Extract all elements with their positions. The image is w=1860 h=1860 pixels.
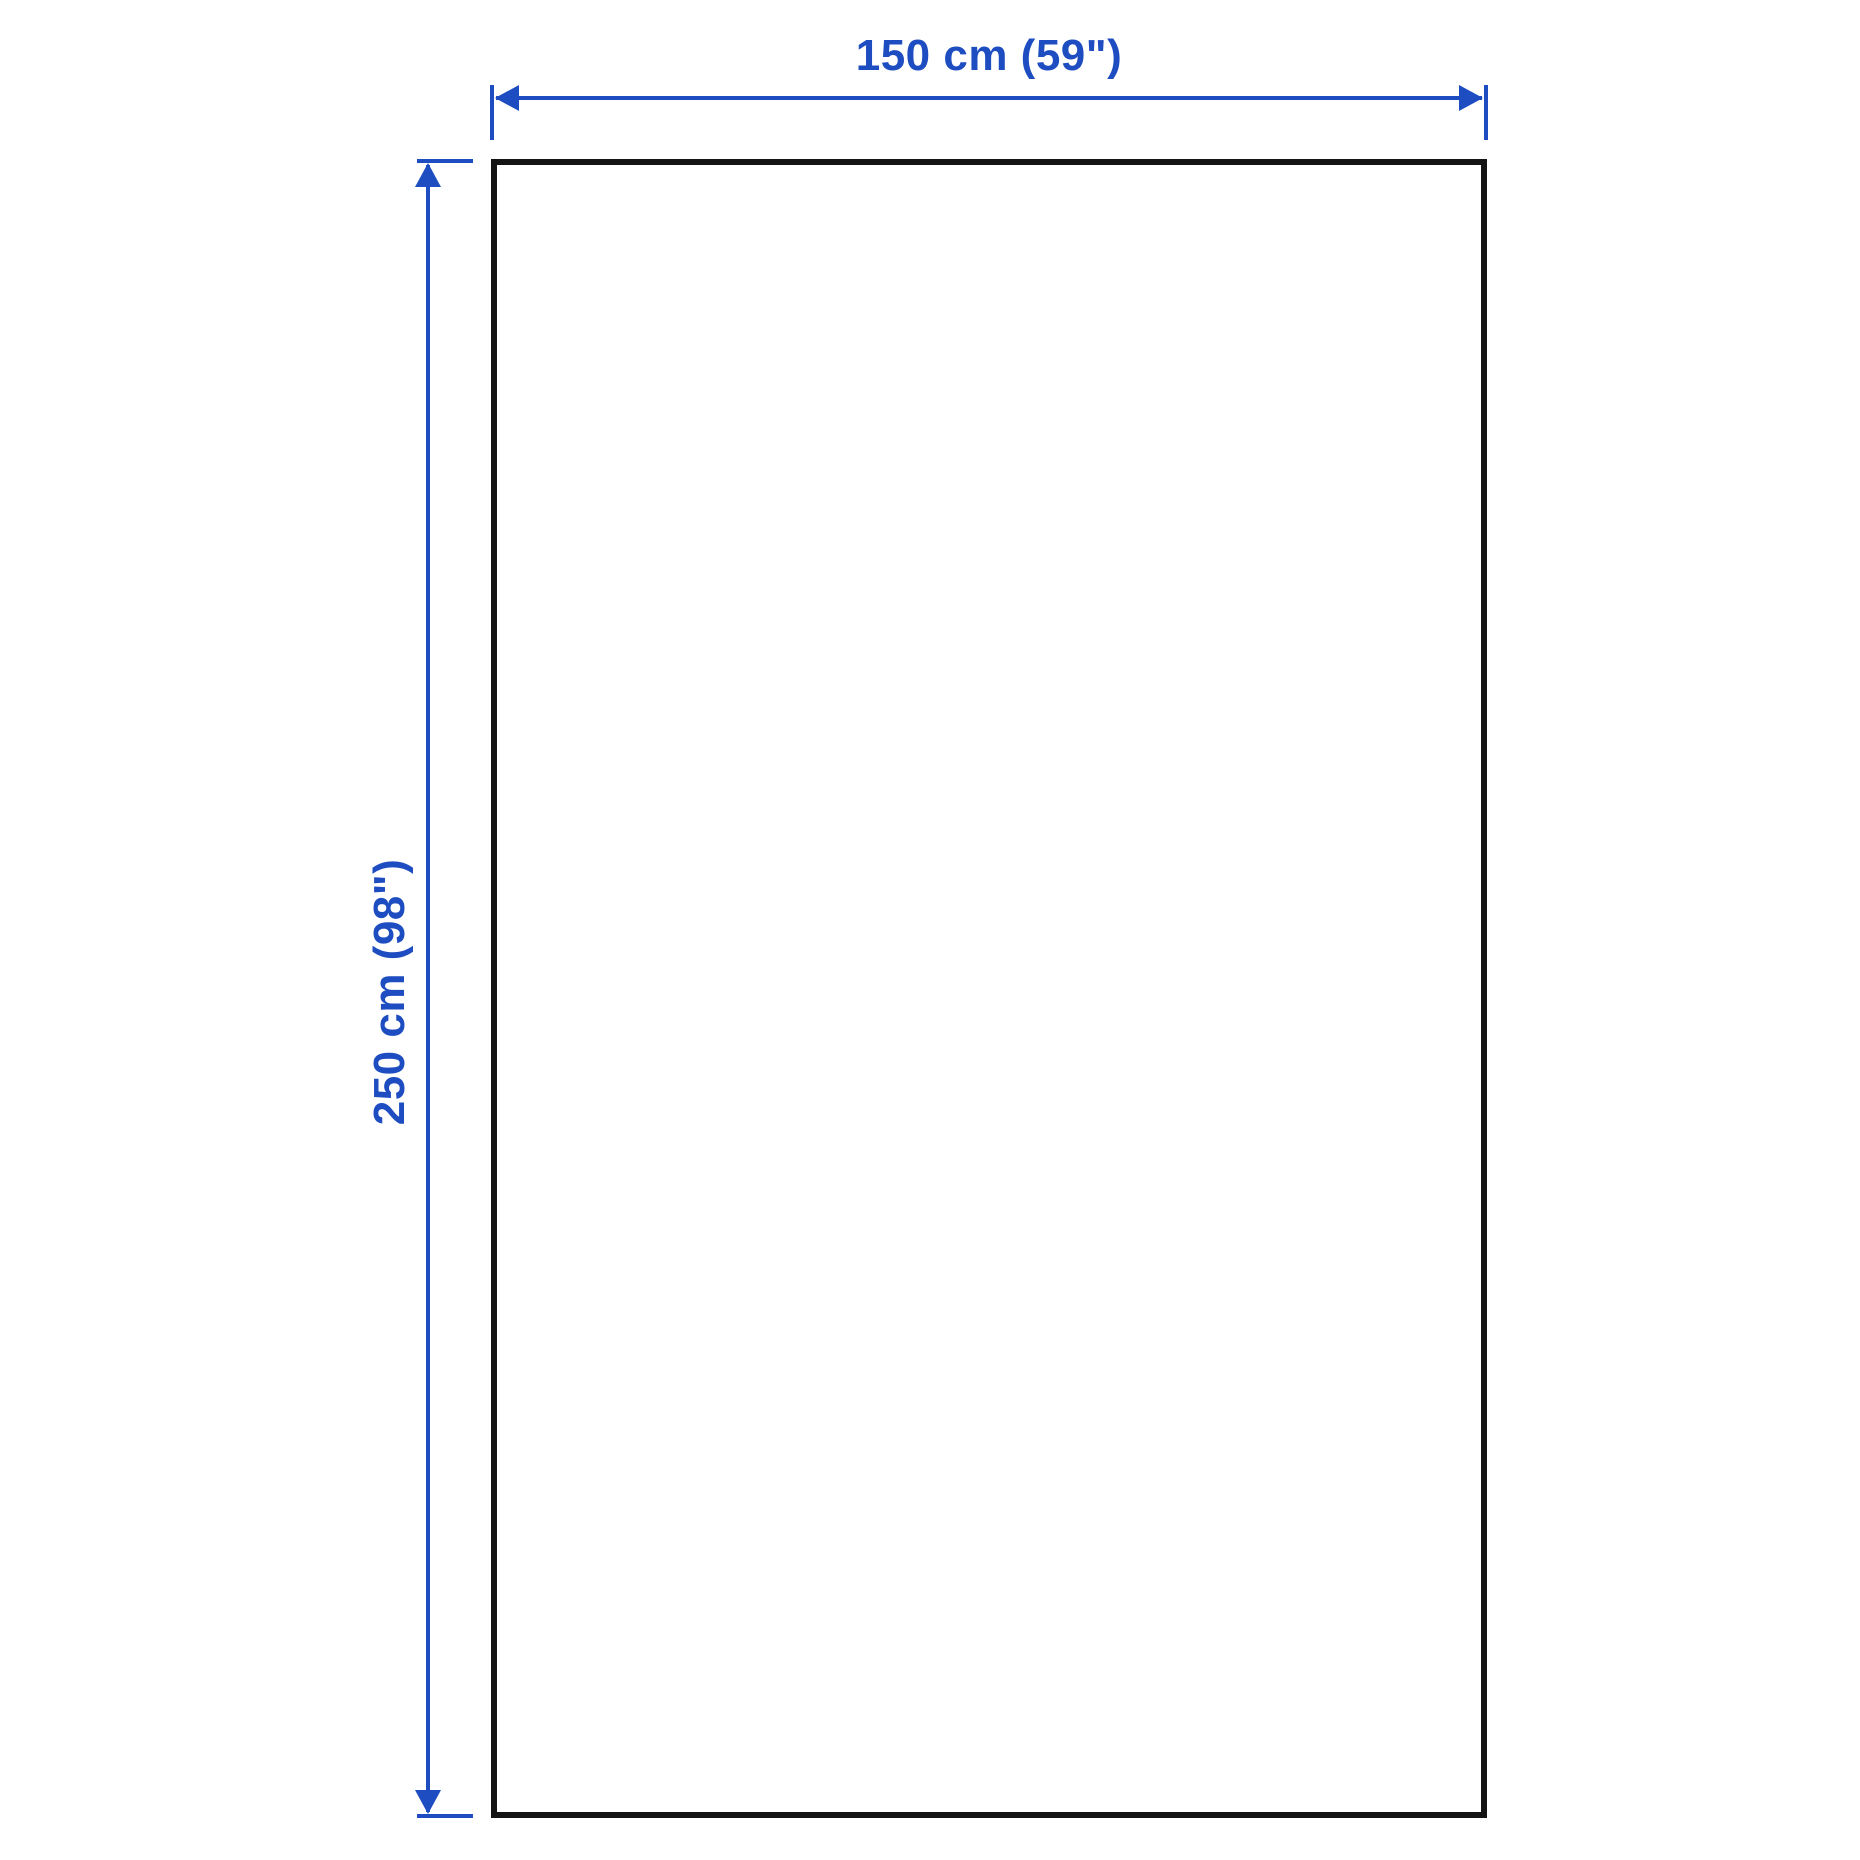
product-outline-rect xyxy=(494,162,1484,1815)
dimension-drawing-svg xyxy=(0,0,1860,1860)
width-dimension-right-arrow-icon xyxy=(1459,85,1483,111)
measurement-diagram: 150 cm (59") 250 cm (98") xyxy=(0,0,1860,1860)
width-dimension xyxy=(492,85,1486,140)
height-dimension xyxy=(415,161,473,1816)
width-dimension-left-arrow-icon xyxy=(495,85,519,111)
width-dimension-label: 150 cm (59") xyxy=(856,31,1123,81)
height-dimension-down-arrow-icon xyxy=(415,1790,441,1814)
height-dimension-label: 250 cm (98") xyxy=(365,859,415,1126)
height-dimension-up-arrow-icon xyxy=(415,163,441,187)
